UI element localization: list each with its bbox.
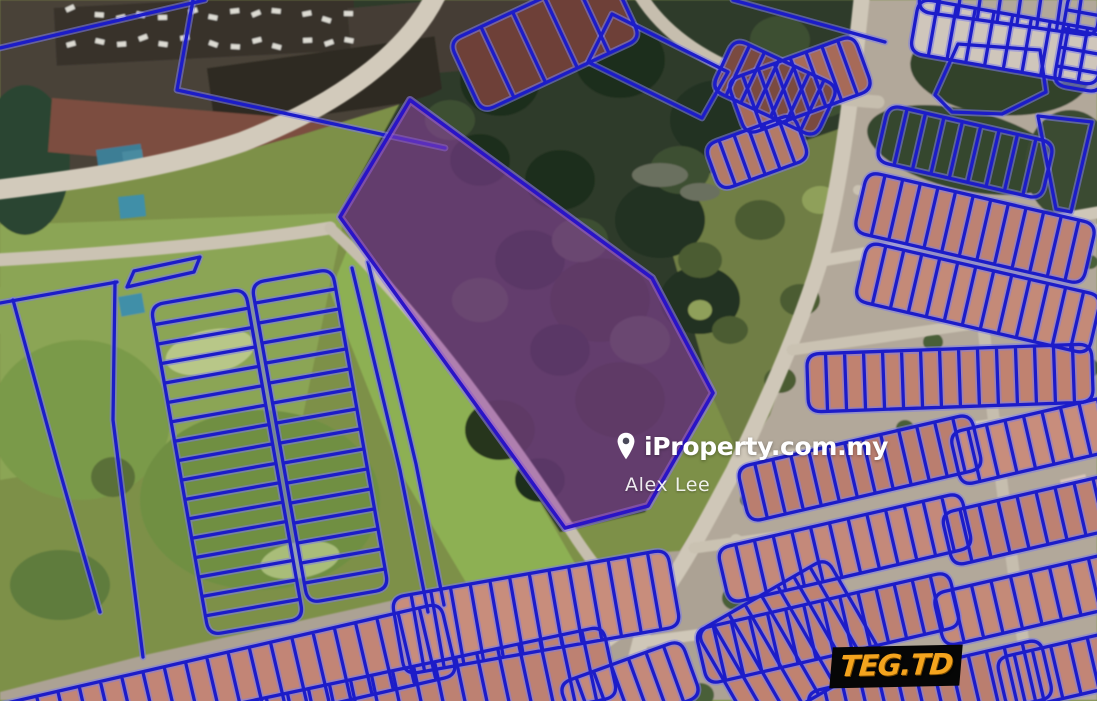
agent-name-text: Alex Lee [625, 474, 710, 496]
satellite-map-image: iProperty.com.my Alex Lee TEG.TD [0, 0, 1097, 701]
agency-logo-badge: TEG.TD [829, 645, 963, 689]
satellite-map-canvas [0, 0, 1097, 701]
